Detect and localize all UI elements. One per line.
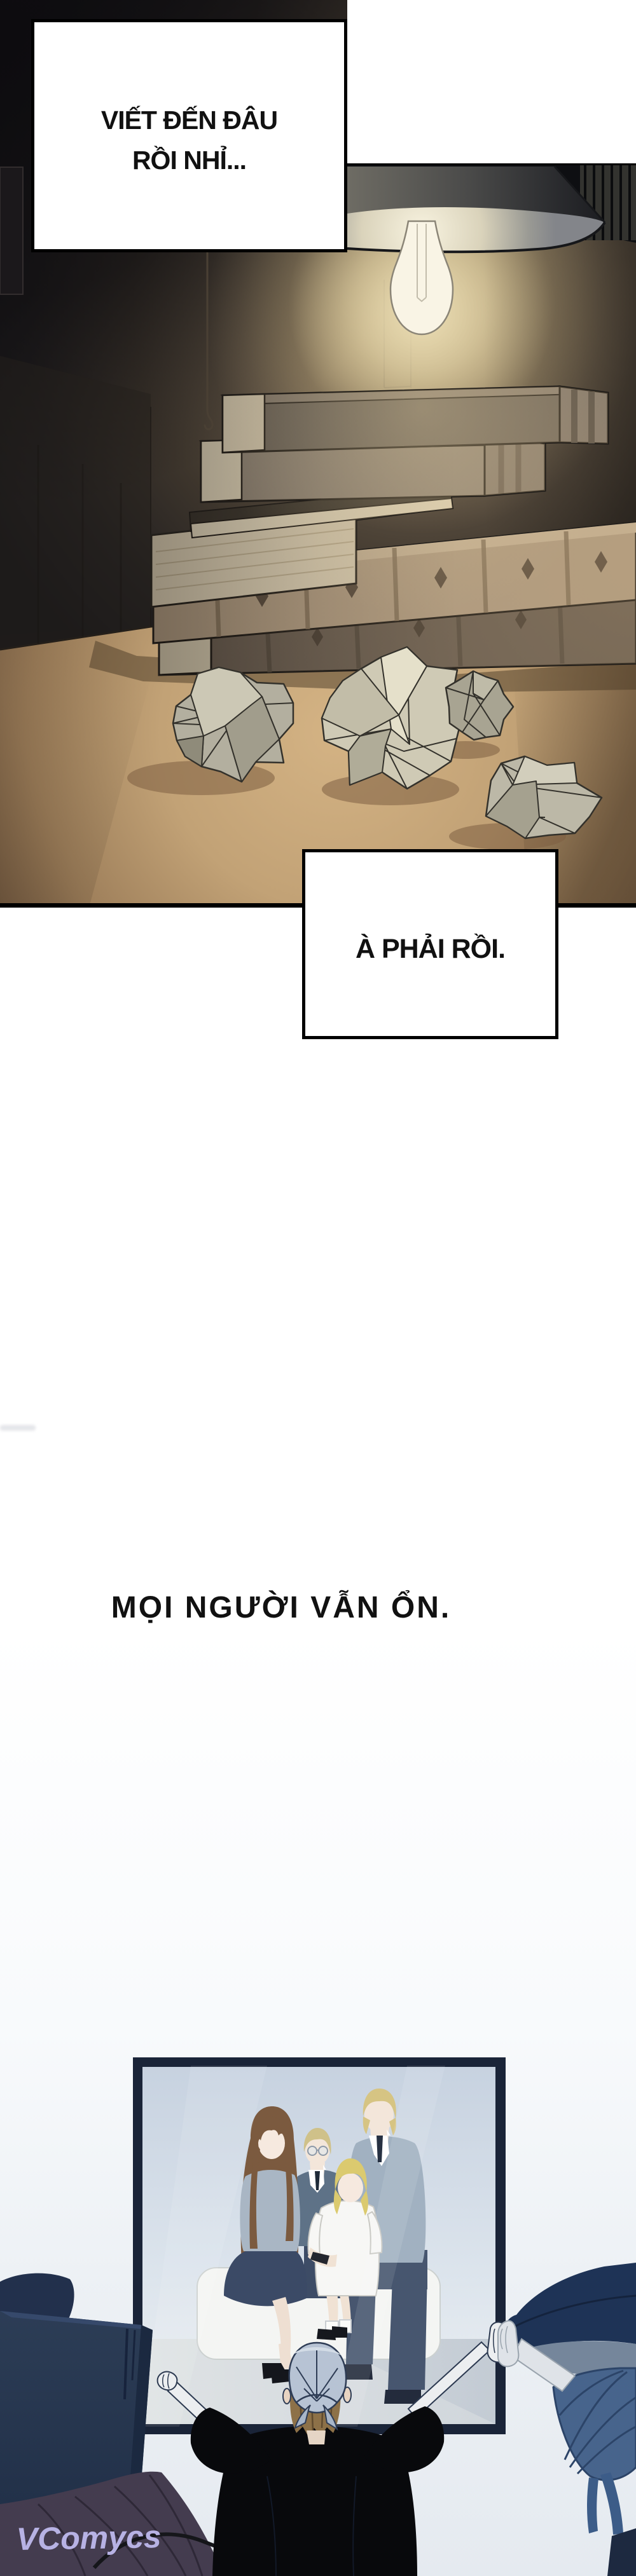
svg-text:VComycs: VComycs: [16, 2519, 162, 2557]
